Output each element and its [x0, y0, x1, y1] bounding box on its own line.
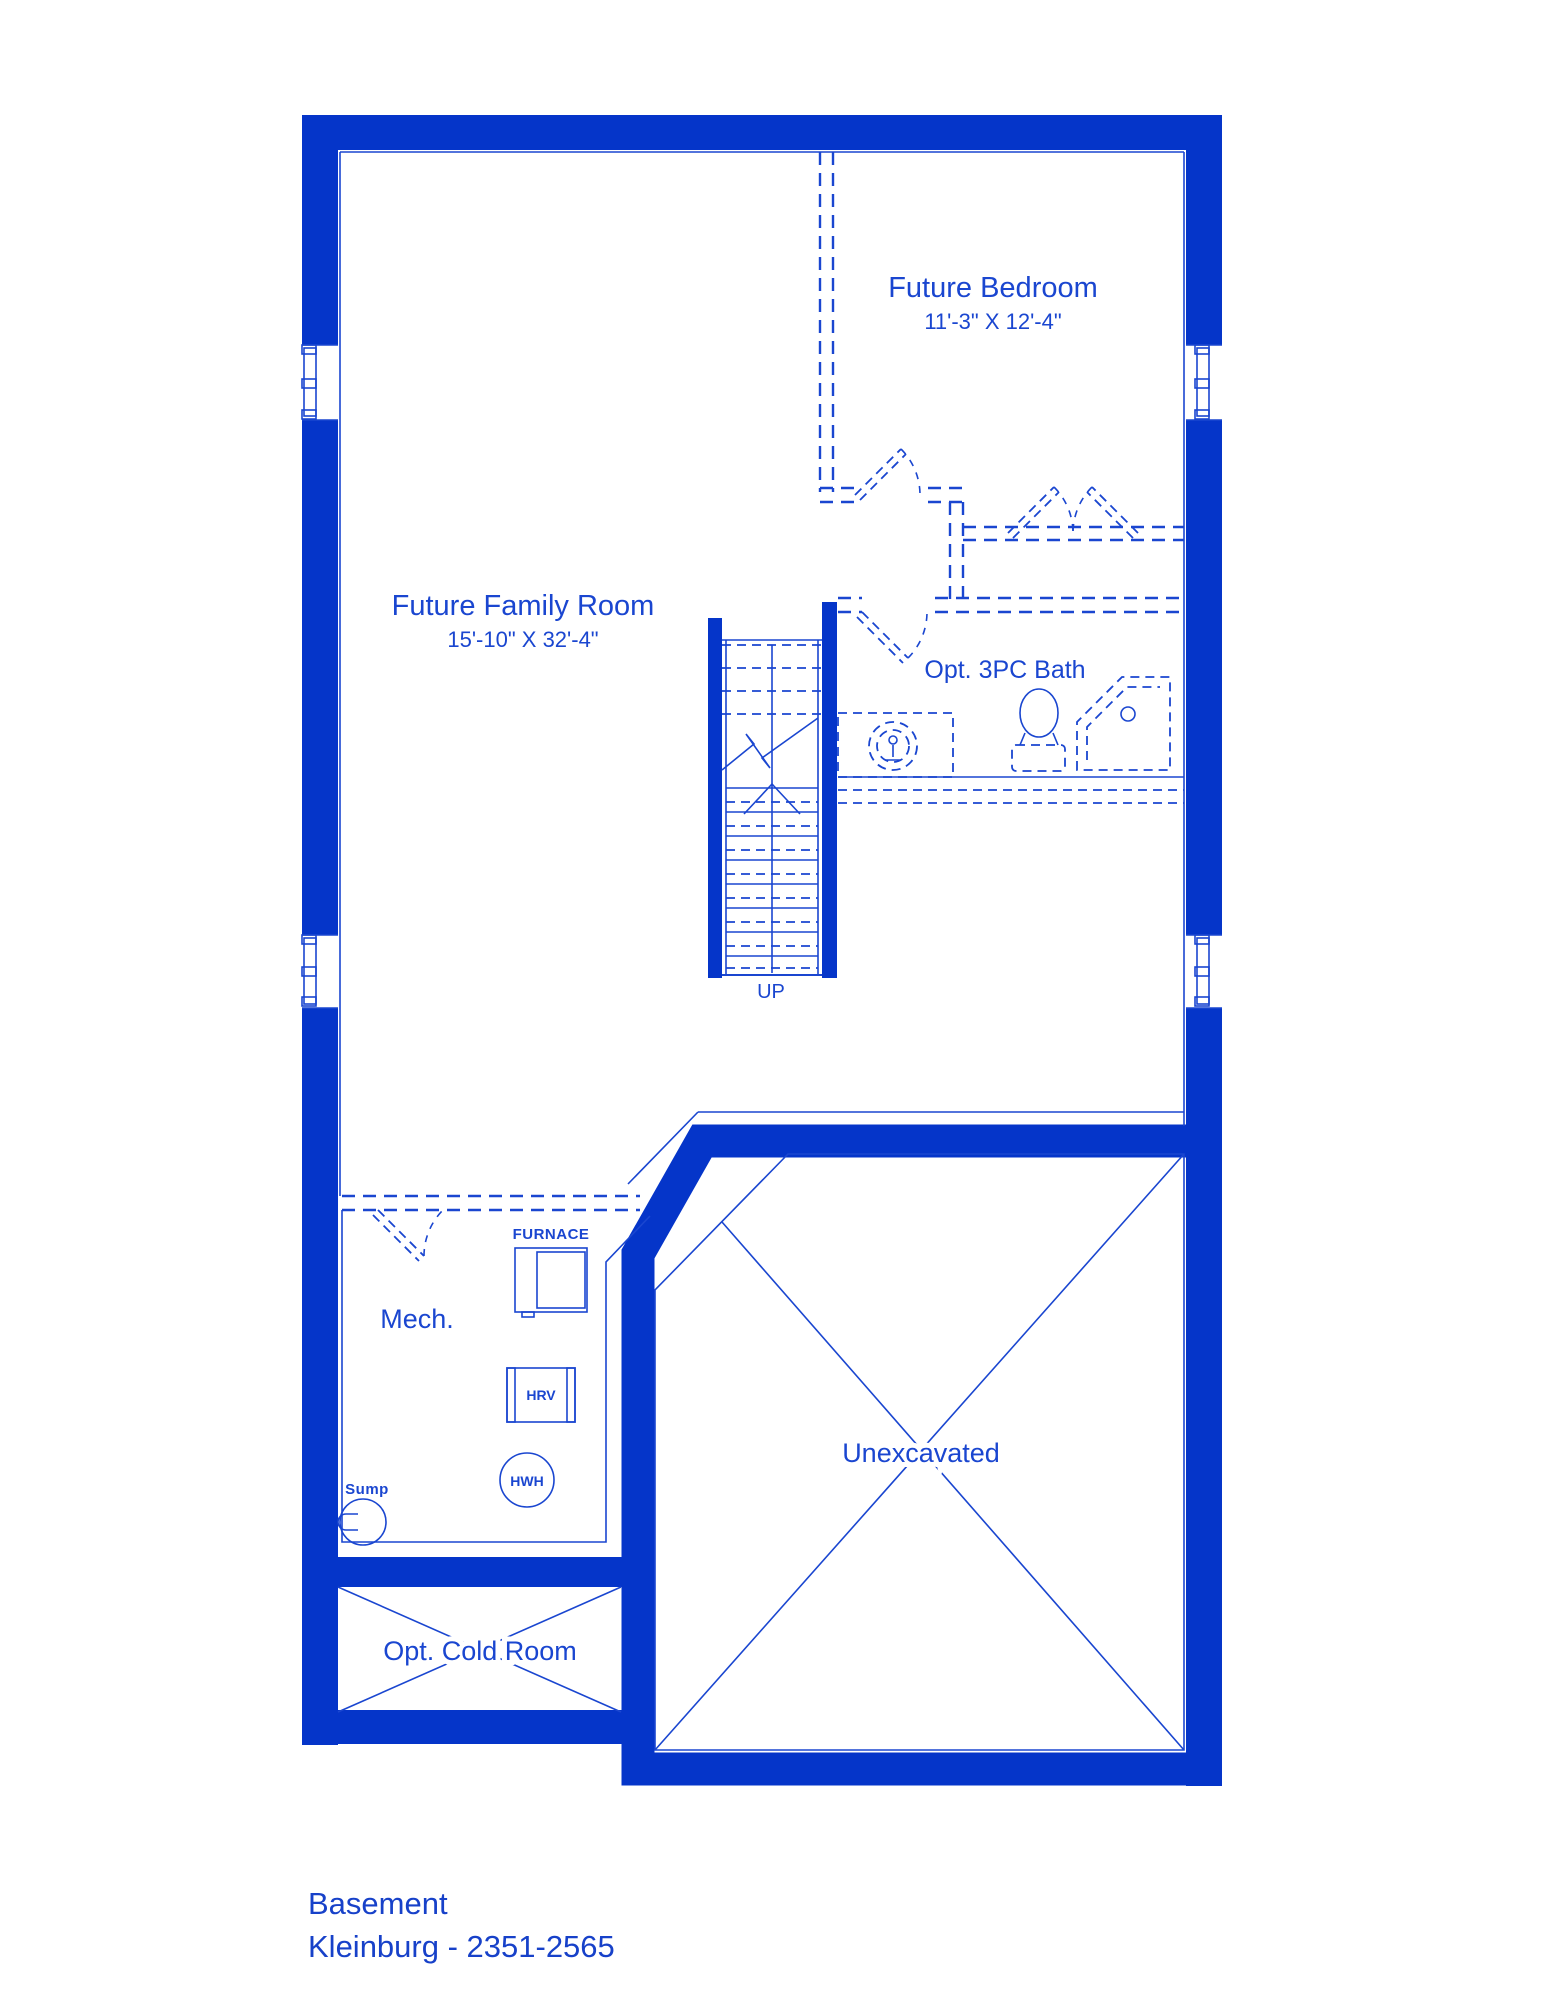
stairs-up-label: UP	[757, 981, 785, 1003]
future-family-room-label: Future Family Room	[392, 590, 655, 622]
unexcavated-label: Unexcavated	[842, 1438, 1000, 1468]
basement-floor-plan: UP Unexcavated	[0, 0, 1546, 2000]
future-bedroom-dimensions: 11'-3" X 12'-4"	[924, 309, 1061, 334]
unexcavated-area: Unexcavated	[655, 1154, 1184, 1750]
future-family-room-dimensions: 15'-10" X 32'-4"	[447, 627, 598, 652]
mech-label: Mech.	[380, 1304, 454, 1334]
sump-icon	[338, 1499, 386, 1545]
furnace-icon	[515, 1248, 587, 1317]
future-bedroom-label: Future Bedroom	[888, 272, 1098, 304]
foundation-walls	[302, 115, 1222, 1786]
stair-break-line	[722, 718, 818, 770]
toilet-icon	[1012, 689, 1065, 771]
shower-icon	[1077, 677, 1170, 770]
wall-right-lower	[1186, 1008, 1222, 1786]
window-left-lower-icon	[302, 935, 316, 1006]
wall-left-lower	[302, 1008, 338, 1745]
bath-label: Opt. 3PC Bath	[924, 656, 1085, 684]
title-block: Basement Kleinburg - 2351-2565	[308, 1886, 615, 1964]
wall-right-upper	[1186, 115, 1222, 345]
furnace-label: FURNACE	[513, 1226, 590, 1243]
sink-icon	[838, 713, 953, 777]
wall-stair-left	[708, 618, 722, 978]
wall-top	[302, 115, 1222, 150]
model-title: Kleinburg - 2351-2565	[308, 1929, 615, 1964]
window-left-upper-icon	[302, 345, 316, 419]
bedroom-door-icon	[855, 449, 920, 500]
bath-door-icon	[857, 612, 927, 663]
hall-wall	[950, 502, 963, 600]
wall-left-mid	[302, 420, 338, 935]
hwh-label: HWH	[510, 1473, 543, 1489]
wall-left-upper	[302, 115, 338, 345]
bath-entry-wall	[838, 598, 1184, 612]
floor-plan-page: UP Unexcavated	[0, 0, 1546, 2000]
window-right-lower-icon	[1195, 935, 1209, 1006]
window-right-upper-icon	[1195, 345, 1209, 419]
cold-room-label: Opt. Cold Room	[383, 1636, 577, 1666]
bedroom-south-wall	[820, 488, 963, 502]
wall-stair-right	[822, 602, 837, 978]
cold-room: Opt. Cold Room	[338, 1587, 621, 1712]
double-door-icon	[1008, 487, 1138, 538]
bath-fixtures	[838, 677, 1184, 803]
wall-right-mid	[1186, 420, 1222, 935]
hrv-label: HRV	[526, 1387, 556, 1403]
mech-partition	[342, 1196, 640, 1210]
sump-label: Sump	[345, 1481, 389, 1498]
mechanical-equipment: FURNACE HRV HWH Sump	[338, 1226, 589, 1545]
bedroom-west-wall	[820, 152, 833, 492]
mech-door-icon	[373, 1210, 443, 1261]
floor-title: Basement	[308, 1886, 448, 1921]
staircase: UP	[722, 640, 822, 1003]
